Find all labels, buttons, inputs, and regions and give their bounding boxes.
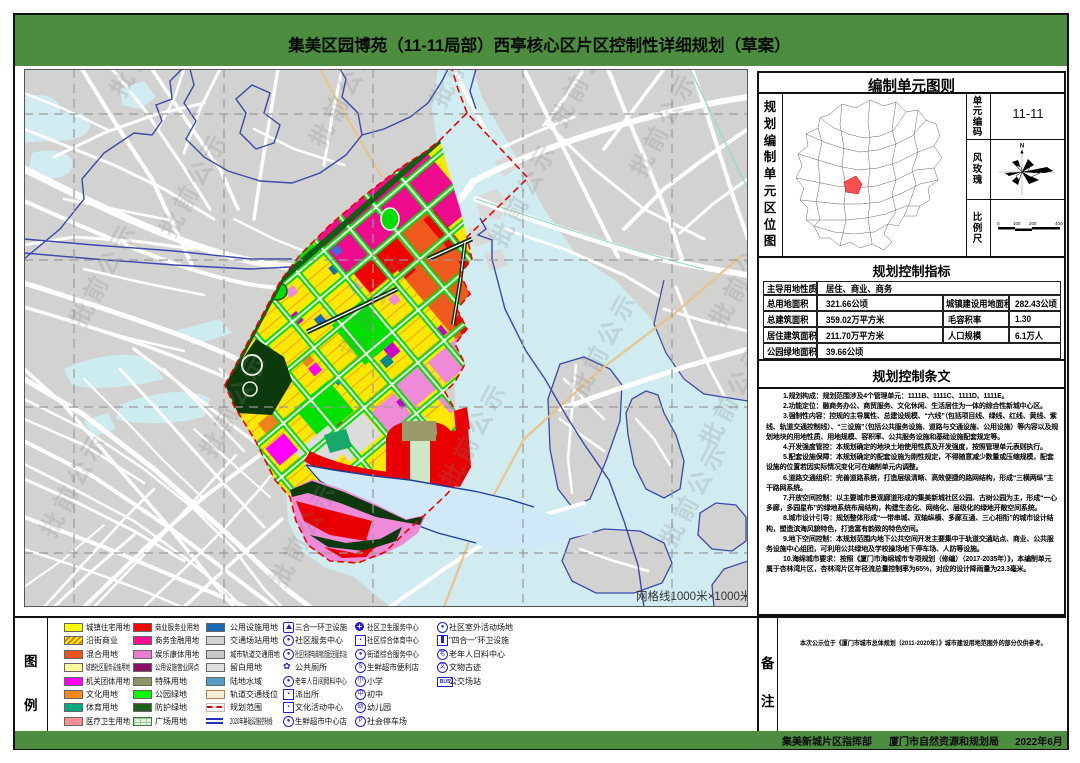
svg-text:网格线1000米×1000米: 网格线1000米×1000米 <box>636 589 748 603</box>
svg-text:100: 100 <box>1013 221 1021 226</box>
svg-text:0: 0 <box>997 221 1000 226</box>
svg-text:200: 200 <box>1029 221 1037 226</box>
svg-text:400m: 400m <box>1055 221 1063 226</box>
svg-text:N: N <box>1020 144 1024 150</box>
